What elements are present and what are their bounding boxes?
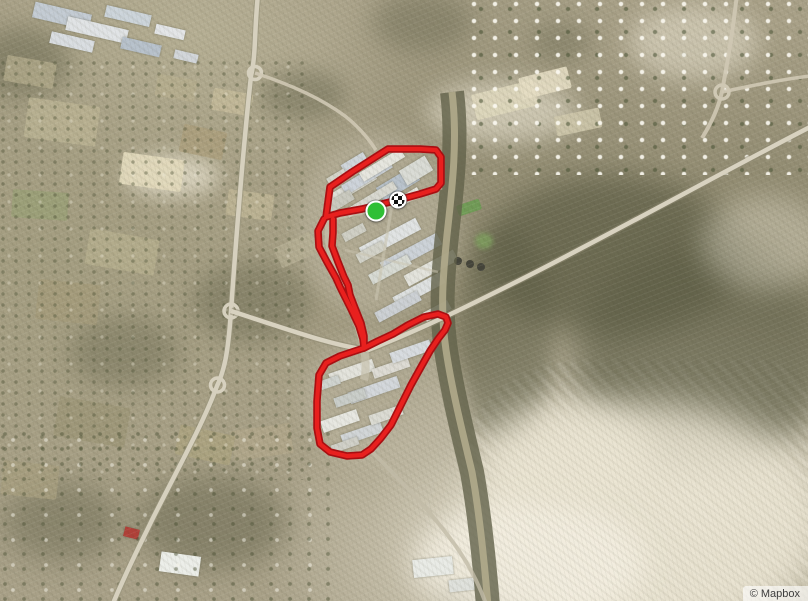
roads-layer	[112, 0, 808, 601]
map-overlay	[0, 0, 808, 601]
map-attribution: © Mapbox	[743, 586, 808, 601]
attribution-text: © Mapbox	[750, 588, 800, 600]
map-canvas[interactable]: © Mapbox	[0, 0, 808, 601]
route-overlay	[317, 149, 448, 456]
route-finish-marker	[390, 192, 407, 209]
route-connector-west-strand	[318, 219, 364, 348]
route-start-marker	[366, 201, 387, 222]
